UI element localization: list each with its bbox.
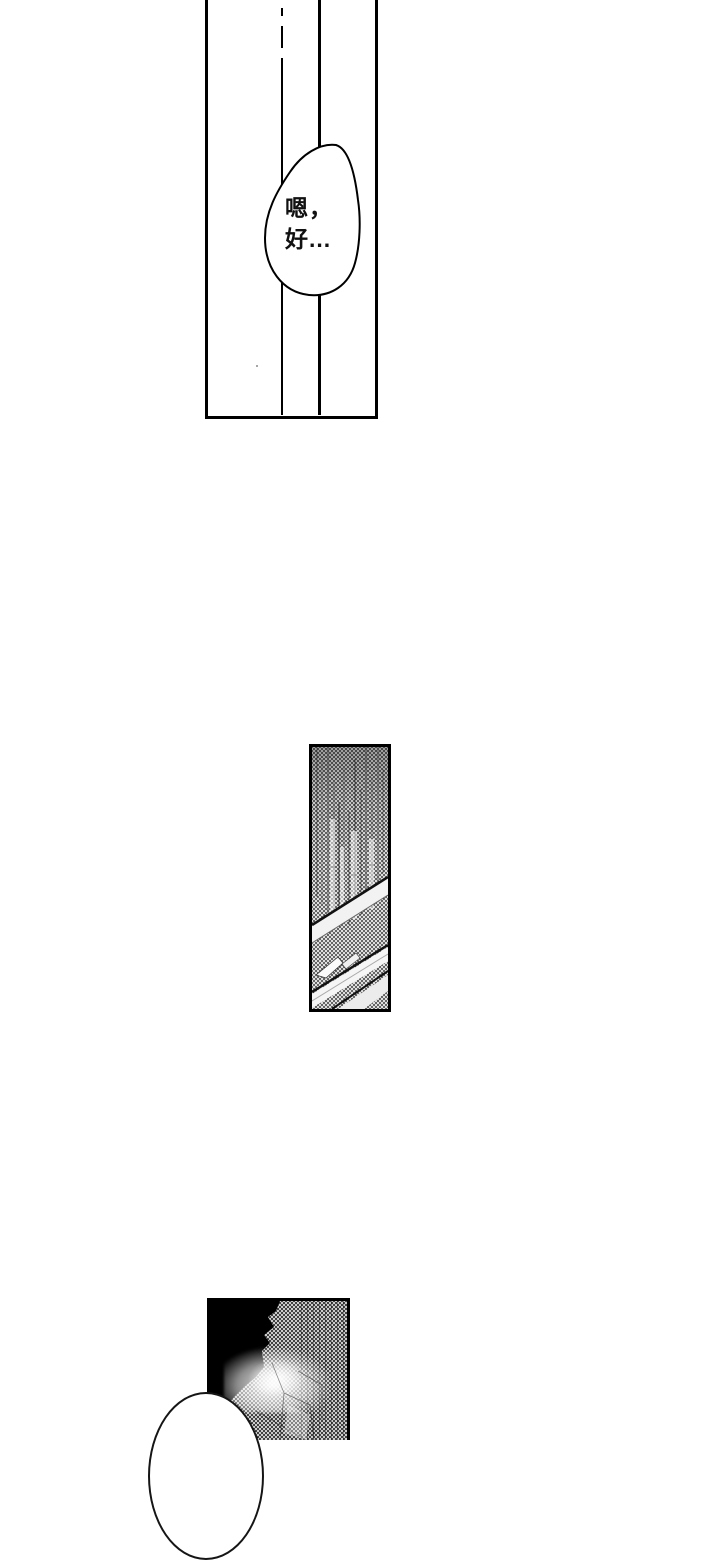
speech-line-1: 嗯， [285,193,333,224]
panel-building [309,744,391,1012]
speech-bubble-text: 嗯， 好... [285,193,333,255]
speech-bubble: 嗯， 好... [262,142,362,298]
wall-line-dash [281,26,283,48]
speech-line-2: 好... [285,224,333,255]
panel-hallway: 嗯， 好... [205,0,378,419]
wall-line-dash [281,8,283,16]
figure-head [148,1392,264,1560]
building-artwork [312,747,388,1009]
ink-speck [256,365,258,367]
